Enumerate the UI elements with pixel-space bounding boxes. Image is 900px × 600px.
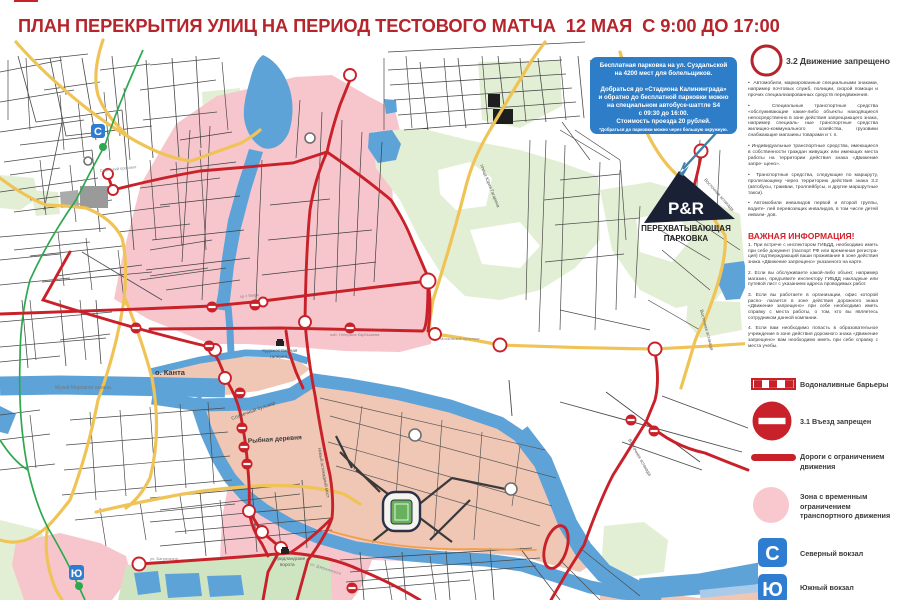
svg-text:С: С — [765, 543, 779, 565]
svg-text:Художественная: Художественная — [262, 348, 298, 353]
svg-text:ПЕРЕХВАТЫВАЮЩАЯ: ПЕРЕХВАТЫВАЮЩАЯ — [641, 224, 731, 233]
svg-text:о. Канта: о. Канта — [155, 368, 186, 377]
svg-text:Ю: Ю — [71, 568, 82, 580]
svg-text:P&R: P&R — [668, 199, 704, 218]
svg-text:С: С — [94, 126, 102, 138]
svg-text:ул. Багратиона: ул. Багратиона — [150, 556, 179, 561]
svg-text:Фридландские: Фридландские — [274, 556, 306, 561]
svg-text:Музей Мирового океана: Музей Мирового океана — [55, 384, 111, 391]
svg-text:наб. Генерала Карбышева: наб. Генерала Карбышева — [330, 332, 380, 337]
svg-text:ворота: ворота — [280, 562, 295, 567]
svg-text:Ю: Ю — [762, 579, 783, 600]
svg-text:Московский проспект: Московский проспект — [440, 336, 480, 341]
svg-text:галерея: галерея — [270, 354, 287, 359]
svg-text:ПАРКОВКА: ПАРКОВКА — [664, 234, 709, 243]
